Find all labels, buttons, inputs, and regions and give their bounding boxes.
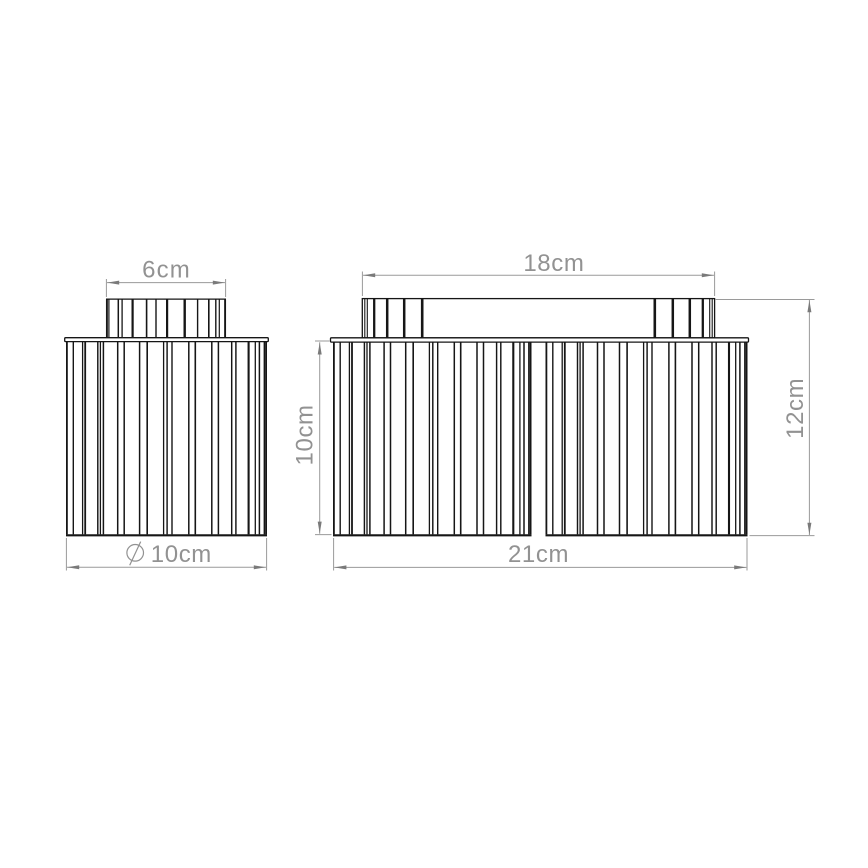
svg-text:10cm: 10cm [291, 404, 318, 465]
svg-text:18cm: 18cm [523, 250, 584, 277]
svg-text:21cm: 21cm [508, 541, 569, 568]
svg-text:6cm: 6cm [142, 257, 191, 284]
svg-text:12cm: 12cm [782, 378, 809, 439]
svg-text:10cm: 10cm [151, 541, 212, 568]
